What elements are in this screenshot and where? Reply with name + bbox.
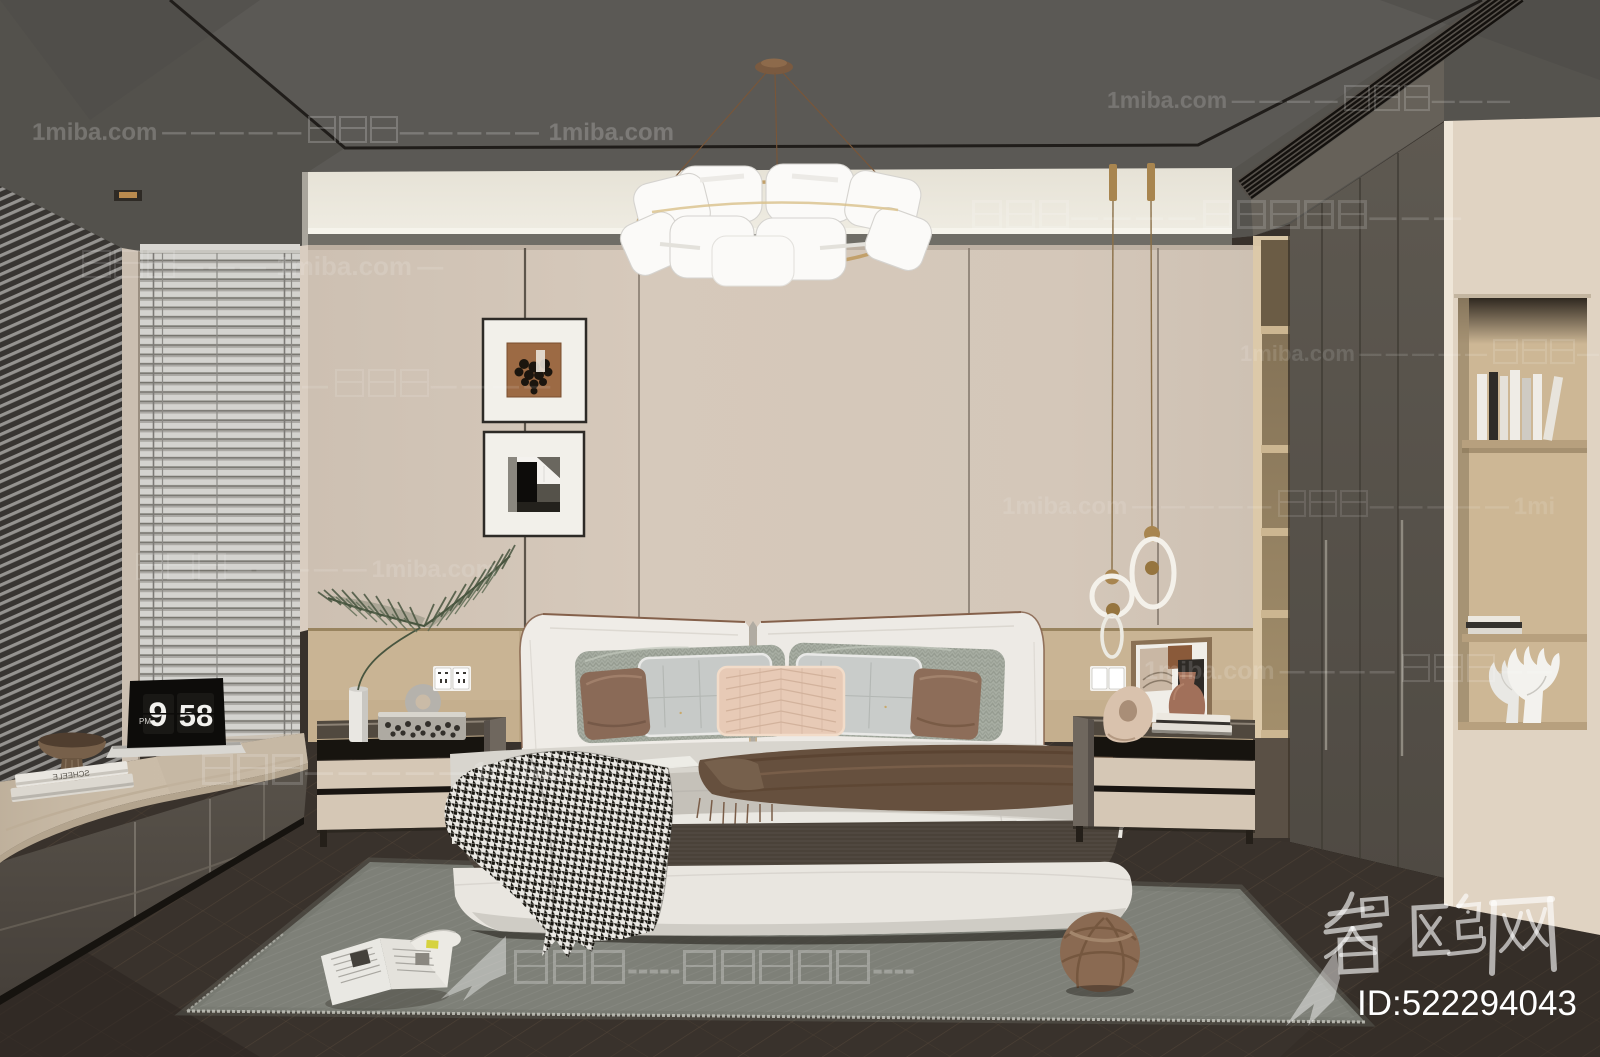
svg-text:PM: PM	[139, 717, 151, 726]
svg-text:9: 9	[149, 696, 168, 734]
svg-text:58: 58	[179, 698, 213, 733]
